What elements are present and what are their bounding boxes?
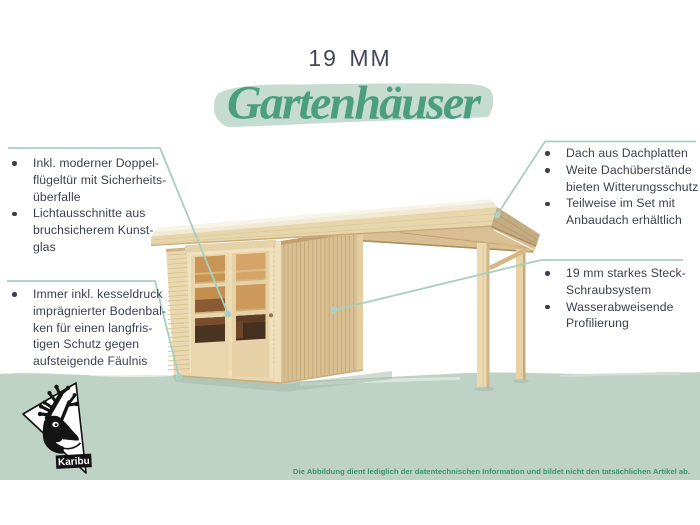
svg-text:Gartenhäuser: Gartenhäuser	[227, 77, 482, 130]
svg-text:Die Abbildung dient lediglich: Die Abbildung dient lediglich der datent…	[293, 467, 690, 476]
svg-text:Karibu: Karibu	[58, 456, 90, 469]
